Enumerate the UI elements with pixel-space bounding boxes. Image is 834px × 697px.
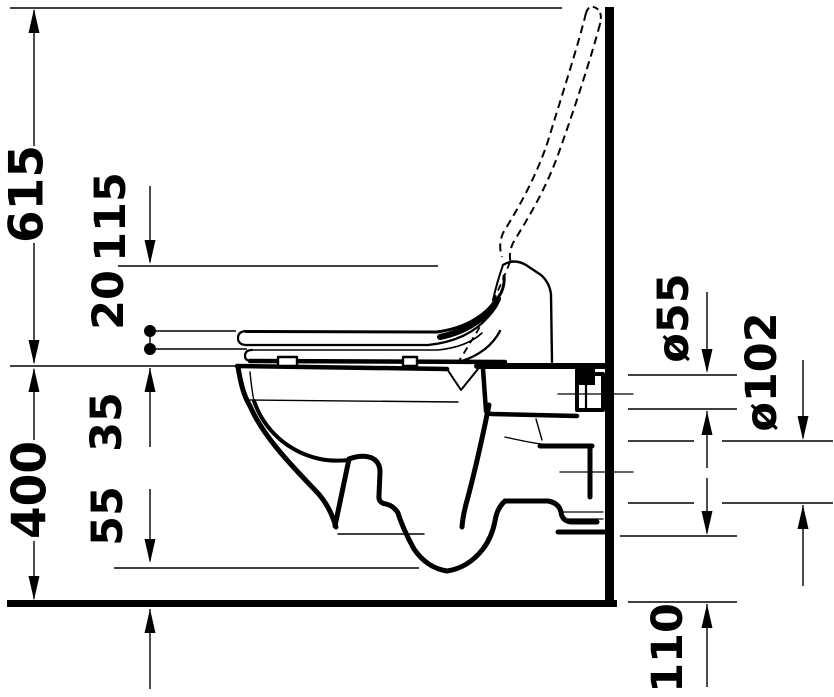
outlet-elbow-inner-lines <box>562 512 603 519</box>
trap-right-and-u-bend <box>349 456 505 571</box>
bowl-interior-curve <box>254 401 349 461</box>
dim-dia55-arrow-up <box>702 411 713 435</box>
dim-110-label: 110 <box>643 603 693 693</box>
trap-inner-downpipe <box>462 405 489 527</box>
seat-back-curve <box>462 331 500 361</box>
seat-bumper-rear <box>403 357 417 366</box>
floor-section <box>7 600 617 607</box>
dim-110-arrow-up <box>702 604 713 628</box>
dim-400-arrow-up <box>29 368 40 392</box>
outlet-funnel-curve <box>505 437 541 444</box>
open-lid-outer-dash <box>510 24 600 263</box>
dim-55-arrow-down <box>145 539 156 563</box>
drawing-canvas: 615 400 115 20 35 <box>0 0 834 697</box>
dim-dia102-arrow-down <box>798 416 809 440</box>
dim-dia55-arrow-down <box>702 349 713 373</box>
dimension-dia55: ø55 <box>649 273 713 468</box>
dim-55-label: 55 <box>83 486 133 546</box>
dimension-115: 115 <box>86 172 156 264</box>
hinge-cover <box>503 262 552 363</box>
dim-615-label: 615 <box>0 145 55 243</box>
seat-bumper-front <box>278 357 297 366</box>
bowl-back-inner-wall <box>483 369 577 416</box>
trap-left-wall <box>335 459 349 526</box>
toilet-dimension-drawing: 615 400 115 20 35 <box>0 0 834 697</box>
dimension-400: 400 <box>3 368 58 600</box>
bowl-front-inner-edge <box>250 372 254 401</box>
dim-35-label: 35 <box>82 392 132 452</box>
dim-615-arrow-down <box>29 340 40 364</box>
dim-115-arrow-down <box>145 240 156 264</box>
rim-flush-notch <box>447 369 478 390</box>
dimension-615: 615 <box>0 9 55 364</box>
open-lid-dashed <box>459 7 601 361</box>
outlet-funnel-slant <box>536 419 542 440</box>
dimensions: 615 400 115 20 35 <box>0 9 809 693</box>
dim-400-arrow-down <box>29 576 40 600</box>
dim-20-label: 20 <box>84 270 134 330</box>
dimension-35: 35 <box>82 368 156 452</box>
open-lid-tip-cap <box>586 7 601 24</box>
dimension-55-left: 55 <box>83 486 156 689</box>
ceramic-bowl <box>237 366 633 571</box>
dim-20-dot-top <box>144 325 156 337</box>
rim-underside-line <box>250 400 458 402</box>
dim-55-arrow-up <box>145 609 156 633</box>
dim-35-arrow-up <box>145 368 156 392</box>
dimension-20: 20 <box>84 270 156 355</box>
dim-dia102-arrow-up <box>798 505 809 529</box>
dim-dia102-label: ø102 <box>737 312 787 431</box>
dim-20-dot-bottom <box>144 343 156 355</box>
dimension-dia102: ø102 <box>737 312 809 586</box>
lid-top-edge <box>246 276 504 332</box>
wall-section <box>605 7 614 607</box>
dim-400-label: 400 <box>3 441 58 539</box>
lid-underside <box>246 298 500 345</box>
dim-110-arrow-down <box>702 511 713 535</box>
dimension-110: 110 <box>643 478 713 693</box>
seat-and-lid <box>238 262 552 367</box>
dim-615-arrow-up <box>29 9 40 33</box>
lid-front-edge <box>238 331 246 345</box>
dim-115-label: 115 <box>86 172 136 262</box>
mounting-block <box>575 366 595 385</box>
dim-dia55-label: ø55 <box>649 273 699 362</box>
open-lid-inner-dash <box>500 13 586 257</box>
